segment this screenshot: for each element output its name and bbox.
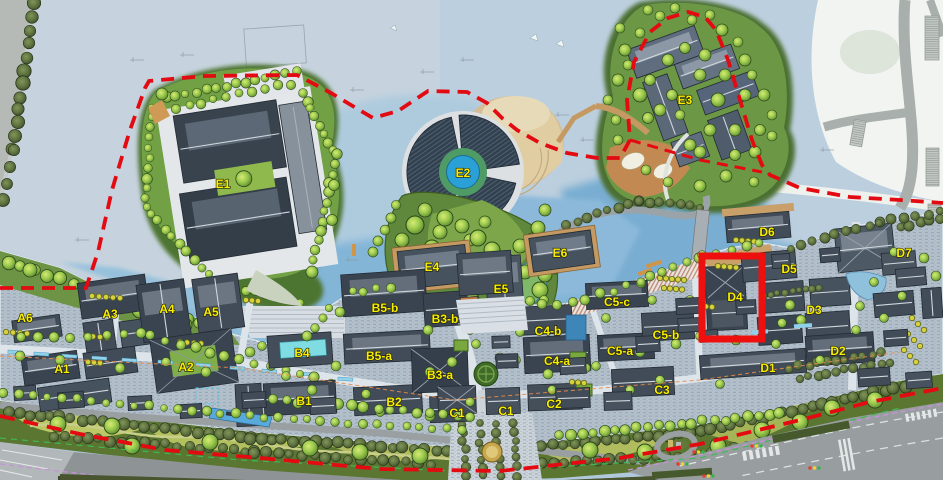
svg-text:A6: A6 bbox=[17, 311, 33, 325]
svg-text:E1: E1 bbox=[216, 177, 231, 191]
svg-text:C4-a: C4-a bbox=[544, 354, 570, 368]
svg-text:D6: D6 bbox=[759, 225, 775, 239]
svg-text:C2: C2 bbox=[546, 397, 562, 411]
svg-text:D2: D2 bbox=[830, 344, 846, 358]
svg-text:A1: A1 bbox=[54, 362, 70, 376]
svg-text:E5: E5 bbox=[494, 282, 509, 296]
svg-text:E2: E2 bbox=[456, 166, 471, 180]
svg-text:B5-b: B5-b bbox=[372, 301, 399, 315]
svg-text:B2: B2 bbox=[386, 395, 402, 409]
svg-text:A5: A5 bbox=[203, 305, 219, 319]
svg-text:D4: D4 bbox=[727, 290, 743, 304]
svg-text:D1: D1 bbox=[760, 361, 776, 375]
svg-text:A3: A3 bbox=[102, 307, 118, 321]
svg-text:B5-a: B5-a bbox=[366, 349, 392, 363]
svg-text:E6: E6 bbox=[553, 246, 568, 260]
svg-text:D3: D3 bbox=[806, 303, 822, 317]
svg-text:D5: D5 bbox=[781, 262, 797, 276]
svg-text:E4: E4 bbox=[425, 260, 440, 274]
svg-text:A4: A4 bbox=[159, 302, 175, 316]
svg-text:B1: B1 bbox=[296, 394, 312, 408]
svg-text:C5-b: C5-b bbox=[653, 328, 680, 342]
svg-text:C1: C1 bbox=[449, 406, 465, 420]
svg-text:B3-b: B3-b bbox=[432, 312, 459, 326]
svg-text:C5-a: C5-a bbox=[607, 344, 633, 358]
svg-text:C1: C1 bbox=[498, 404, 514, 418]
svg-text:D7: D7 bbox=[896, 246, 912, 260]
svg-text:B4: B4 bbox=[294, 346, 310, 360]
svg-text:C4-b: C4-b bbox=[535, 324, 562, 338]
svg-text:B3-a: B3-a bbox=[427, 368, 453, 382]
svg-text:C3: C3 bbox=[654, 383, 670, 397]
svg-text:E3: E3 bbox=[678, 93, 693, 107]
svg-text:A2: A2 bbox=[178, 360, 194, 374]
svg-text:C5-c: C5-c bbox=[604, 295, 630, 309]
